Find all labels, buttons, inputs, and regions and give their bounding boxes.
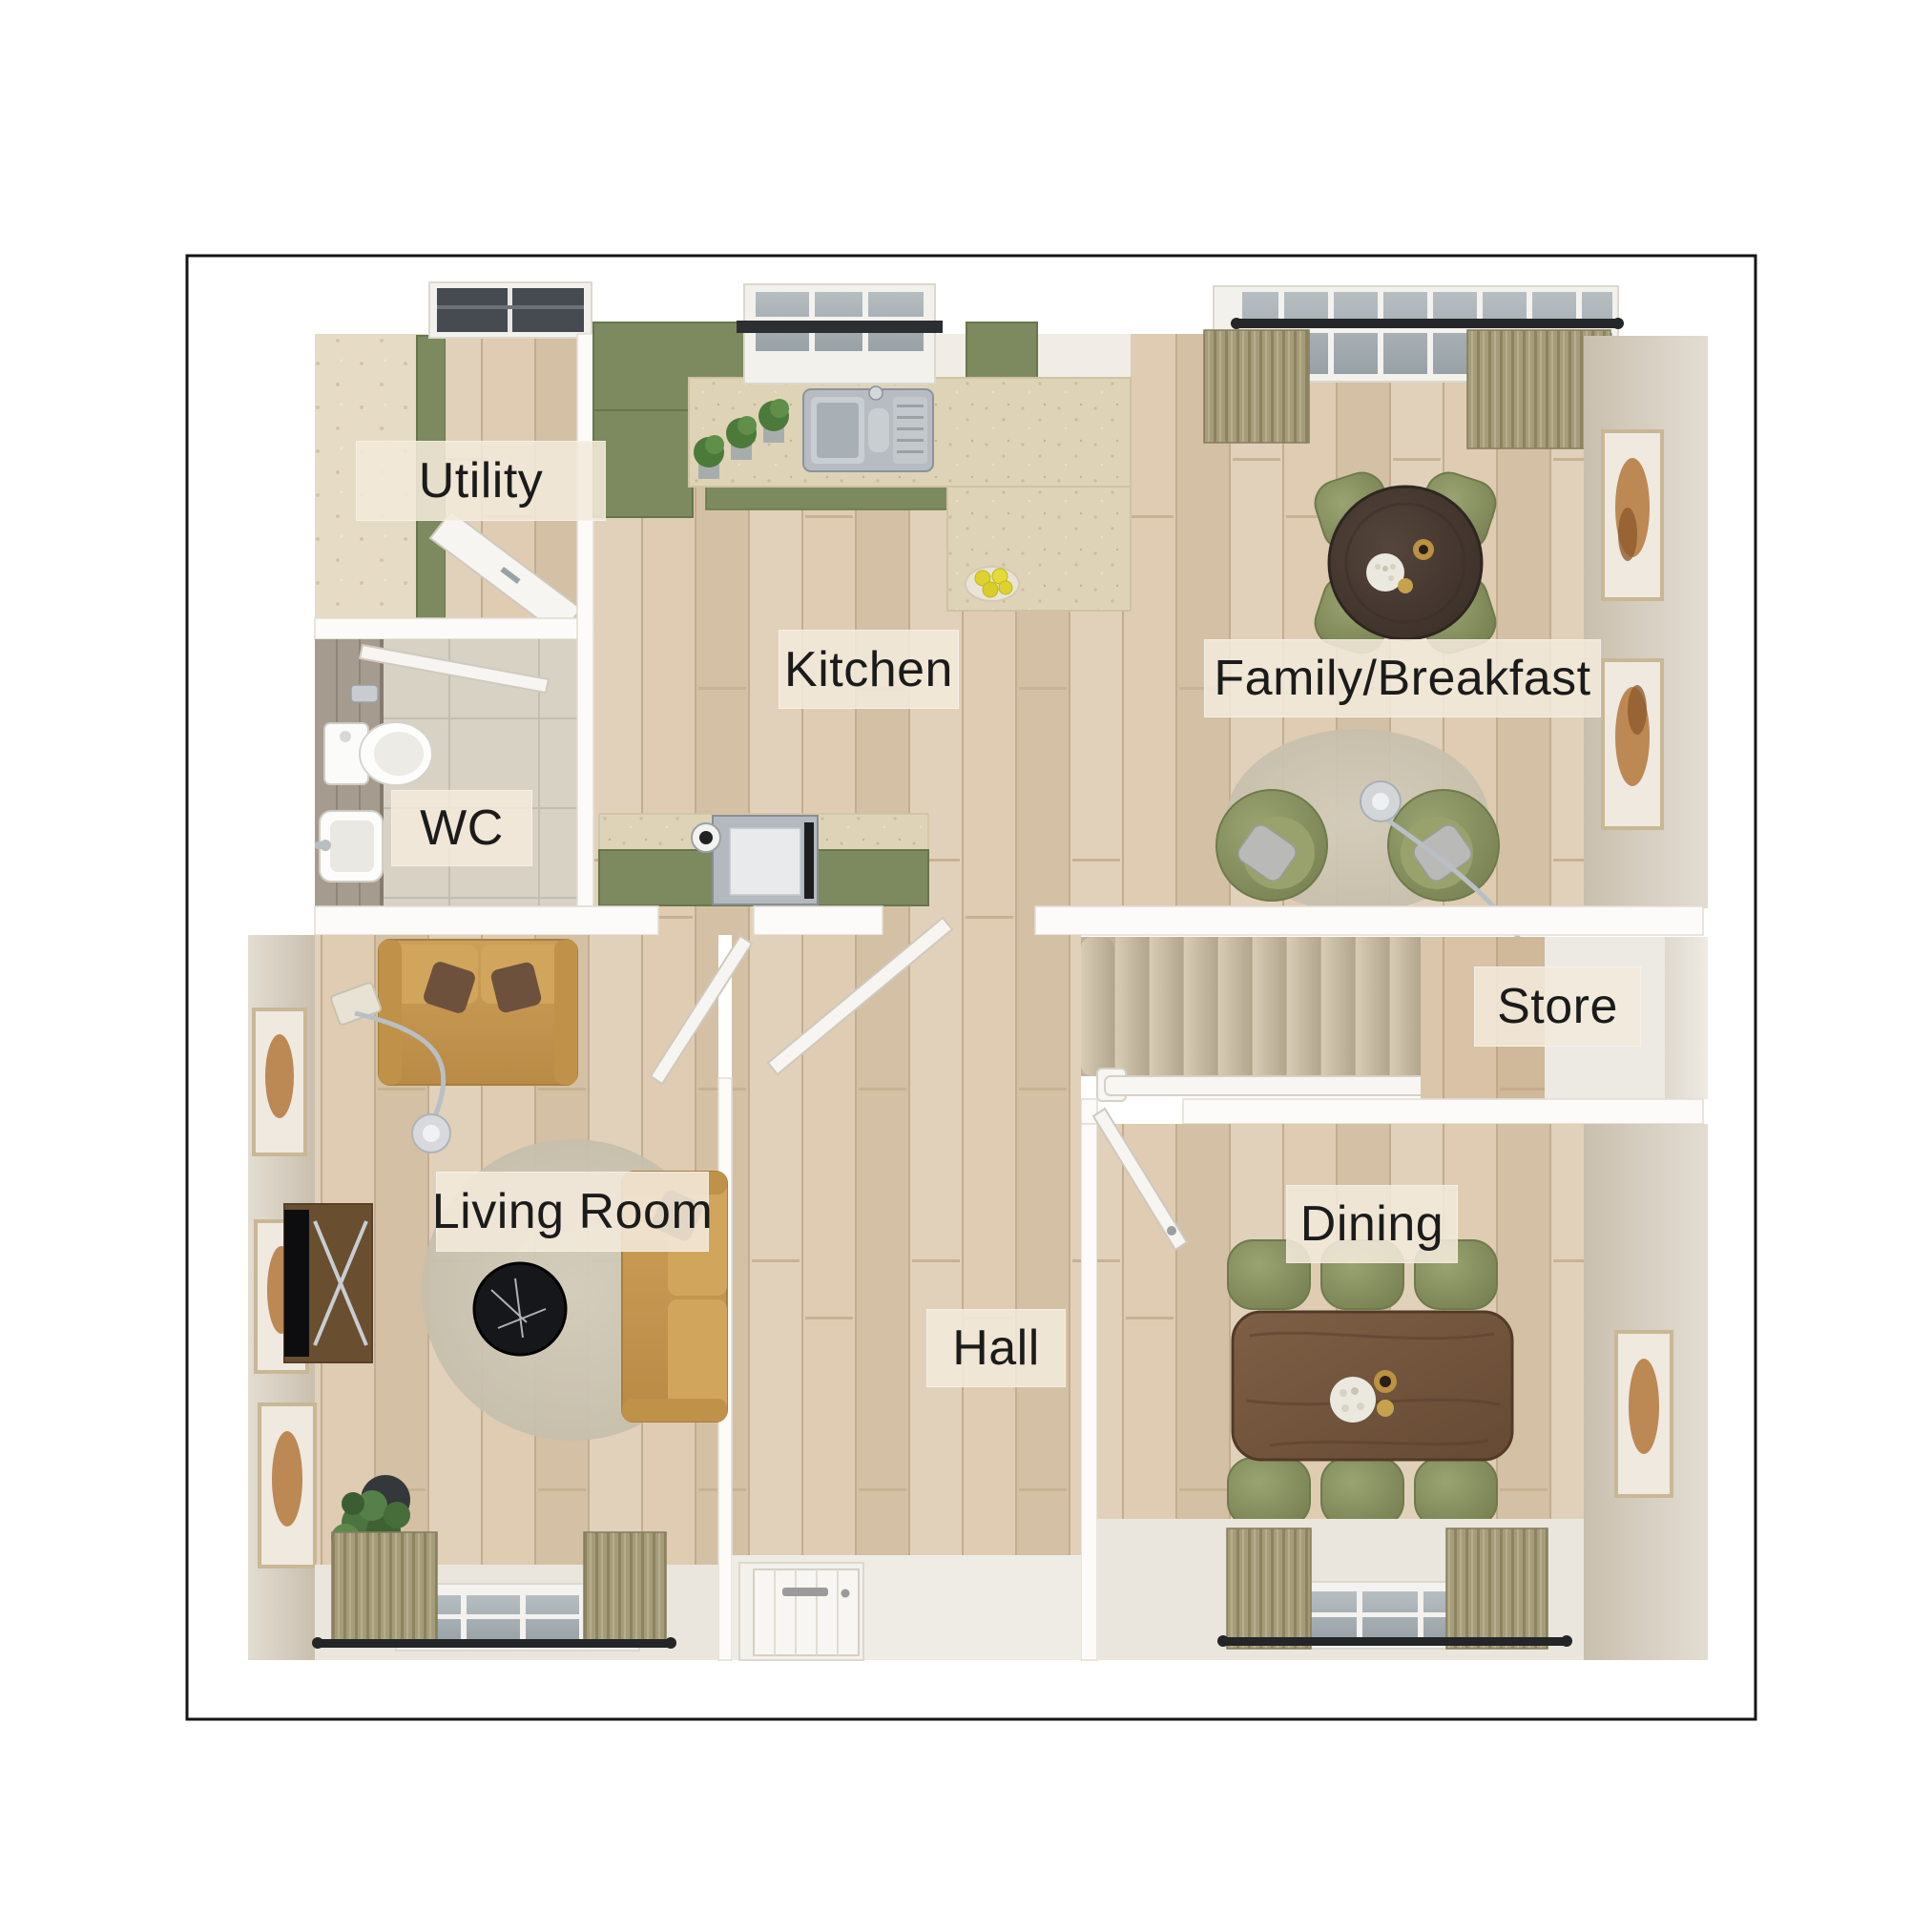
family-curtain-rail — [1231, 318, 1624, 329]
wall-wc-kitchen — [577, 334, 593, 906]
lemon-bowl — [966, 567, 1019, 601]
armchair — [1388, 790, 1499, 901]
kitchen-window — [737, 284, 943, 384]
wall-picture — [1616, 1332, 1672, 1496]
wall-picture — [1603, 660, 1662, 828]
utility-window — [429, 282, 592, 338]
floor-plan-rendering — [0, 0, 1932, 1932]
family-wall-right — [1584, 336, 1708, 908]
tv-unit — [284, 1204, 372, 1362]
room-label-family-breakfast: Family/Breakfast — [1204, 639, 1601, 717]
wall-picture — [1603, 431, 1662, 599]
wall-hall-right — [1081, 1124, 1097, 1660]
kitchen-island-cooker — [599, 814, 928, 905]
kitchen-sink — [803, 386, 933, 471]
room-label-store: Store — [1474, 966, 1641, 1047]
toilet-paper-holder — [351, 685, 378, 702]
room-hall — [732, 1555, 1081, 1660]
coffee-table — [474, 1263, 566, 1355]
hall-floor — [732, 935, 1081, 1660]
wall-utility-wc — [315, 618, 593, 639]
dining-table — [1233, 1312, 1512, 1460]
room-label-wc: WC — [391, 790, 532, 866]
floor-plan-page: Utility WC Kitchen Family/Breakfast Stor… — [0, 0, 1932, 1932]
wall-picture — [260, 1404, 315, 1567]
room-label-kitchen: Kitchen — [779, 630, 959, 709]
front-door — [732, 1555, 1081, 1660]
family-round-table-set — [1309, 467, 1501, 658]
armchair — [1216, 790, 1327, 901]
staircase — [1081, 937, 1425, 1101]
room-label-dining: Dining — [1286, 1185, 1458, 1263]
room-label-hall: Hall — [926, 1309, 1066, 1387]
dining-wall-right — [1584, 1124, 1708, 1660]
basin — [315, 811, 383, 882]
wall-picture — [254, 1009, 305, 1154]
room-label-living-room: Living Room — [436, 1172, 709, 1252]
room-wc — [315, 639, 579, 906]
dining-window — [1097, 1519, 1584, 1660]
toilet — [324, 722, 432, 785]
sofa-two-seat — [379, 940, 577, 1085]
room-label-utility: Utility — [356, 441, 606, 521]
